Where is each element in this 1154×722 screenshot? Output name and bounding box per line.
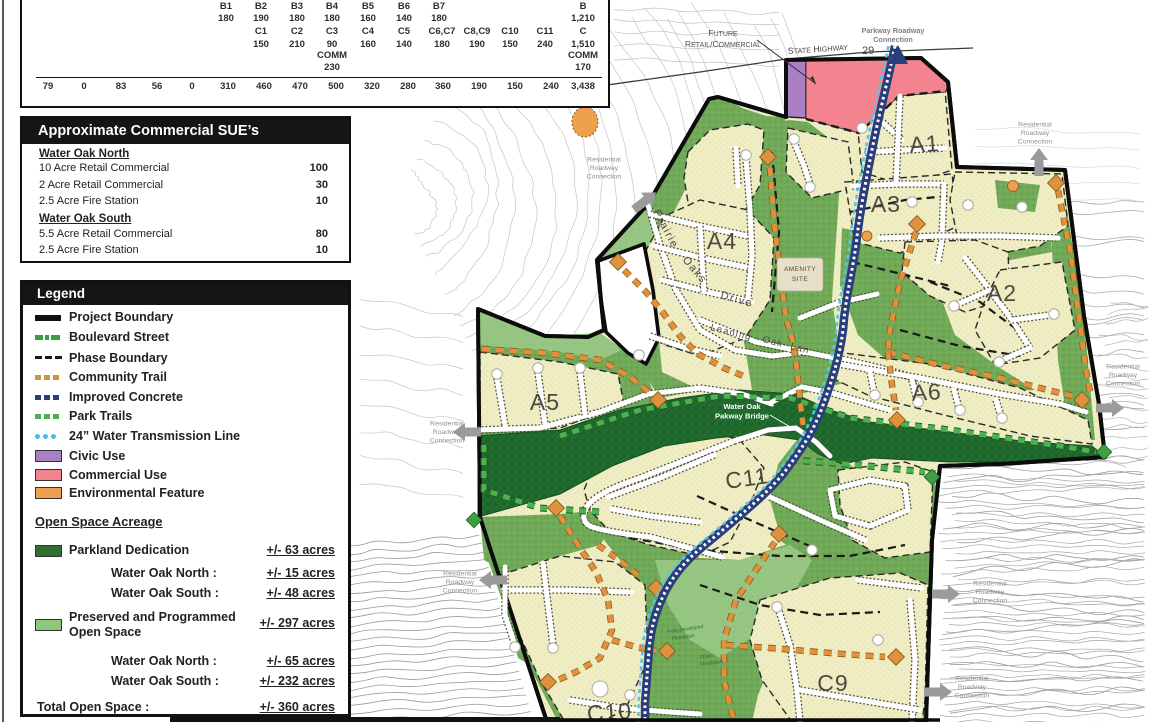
svg-text:AMENITY: AMENITY [784,266,816,273]
svg-text:ResidentialRoadwayConnection: ResidentialRoadwayConnection [1106,364,1141,388]
svg-text:C9: C9 [817,670,848,696]
svg-text:SITE: SITE [792,276,808,283]
svg-text:ResidentialRoadwayConnection: ResidentialRoadwayConnection [587,157,622,181]
svg-text:ResidentialRoadwayConnection: ResidentialRoadwayConnection [973,581,1008,605]
svg-text:29: 29 [862,45,874,57]
svg-text:ResidentialRoadwayConnection: ResidentialRoadwayConnection [430,421,465,445]
svg-text:ResidentialRoadwayConnection: ResidentialRoadwayConnection [443,571,478,595]
svg-text:ResidentialRoadwayConnection: ResidentialRoadwayConnection [1018,122,1053,146]
svg-text:A3: A3 [871,191,901,217]
svg-text:A2: A2 [987,280,1017,306]
svg-text:A4: A4 [707,228,737,254]
svg-text:A5: A5 [530,389,560,415]
svg-text:ResidentialRoadwayConnection: ResidentialRoadwayConnection [955,676,990,700]
svg-text:A6: A6 [911,378,942,406]
svg-text:A1: A1 [909,130,941,158]
